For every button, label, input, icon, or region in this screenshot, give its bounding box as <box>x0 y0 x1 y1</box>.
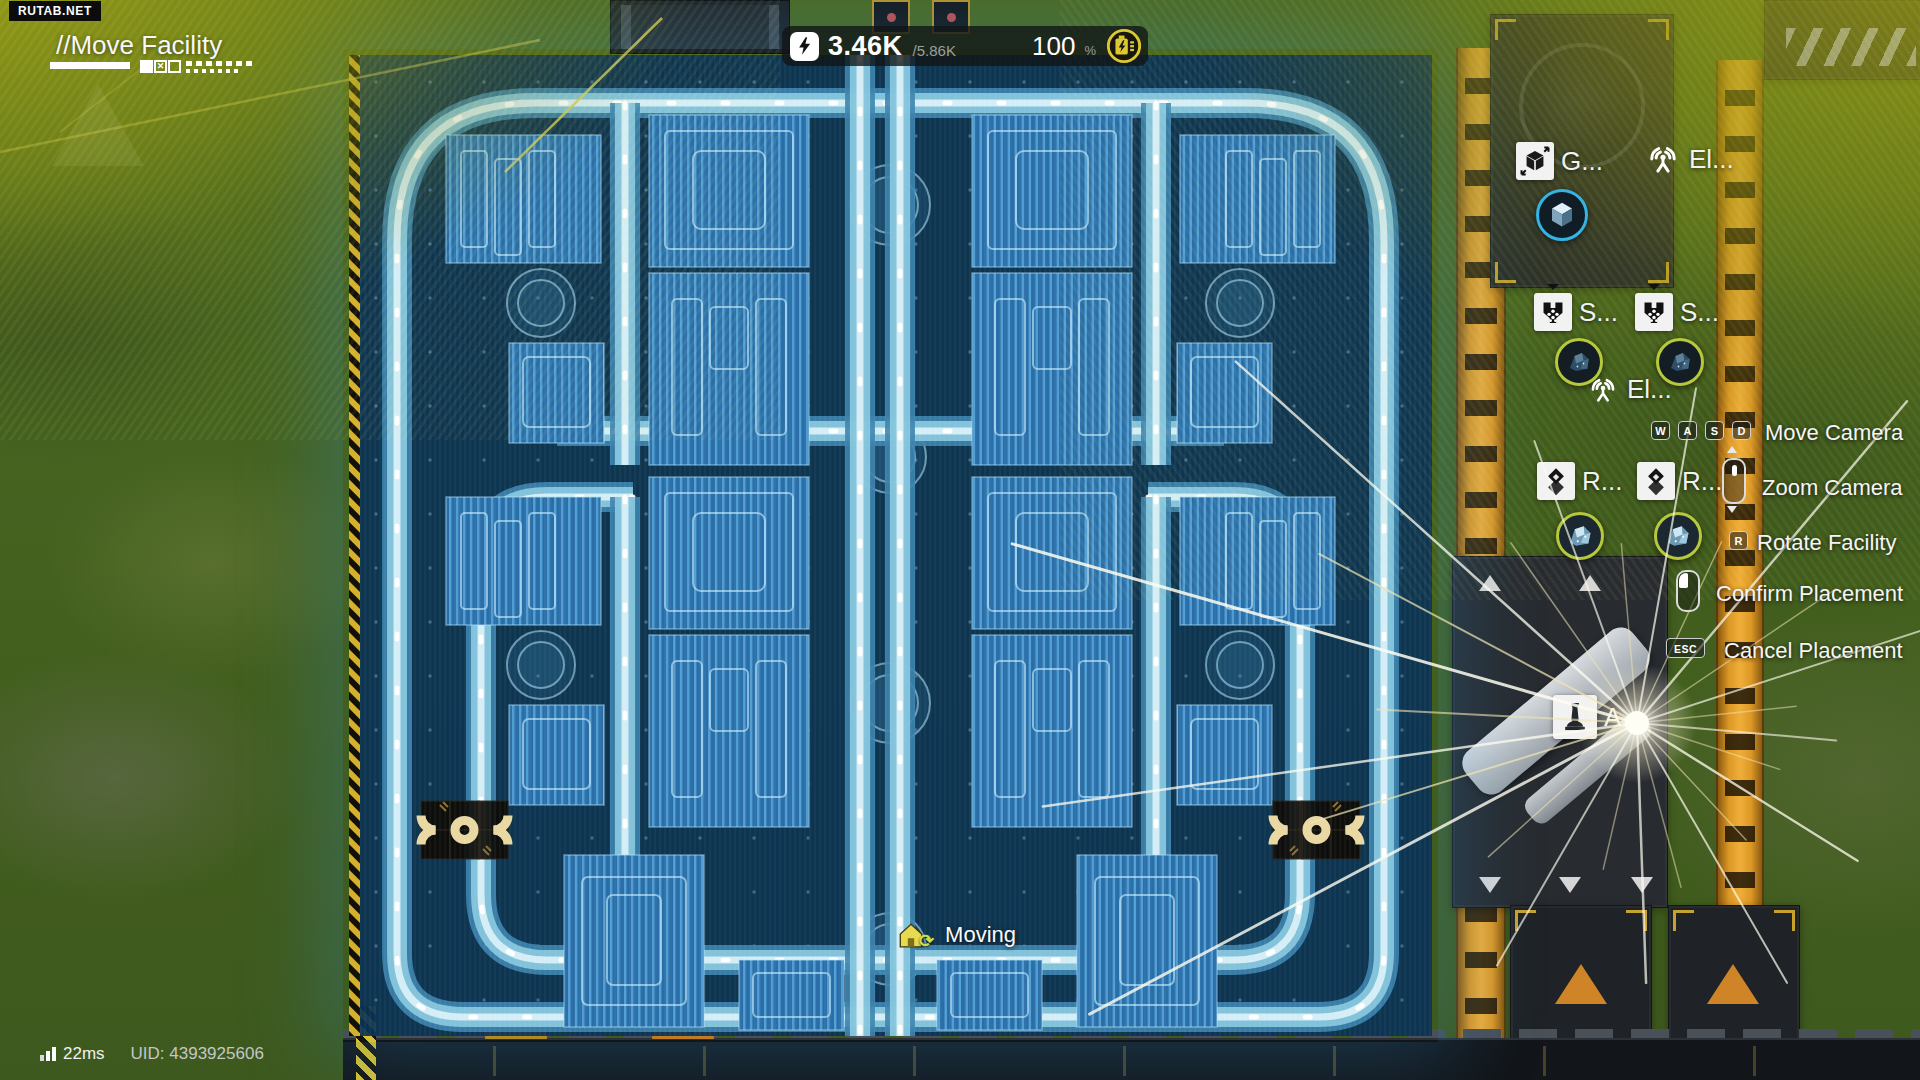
refinery-icon <box>1537 462 1575 500</box>
power-max: /5.86K <box>913 42 956 59</box>
power-icon <box>790 32 819 61</box>
marker-down <box>1631 877 1653 893</box>
sorter-icon <box>1635 293 1673 331</box>
hint-rotate-facility: Rotate Facility <box>1757 530 1896 556</box>
game-screen: .cvA{fill:none;stroke:#3d84ae;stroke-wid… <box>0 0 1920 1080</box>
factory-block-topedge <box>1764 0 1920 80</box>
facility-label: El... <box>1689 144 1734 175</box>
orange-marker <box>1707 964 1759 1004</box>
antenna-icon <box>1586 372 1620 406</box>
item-badge-crystal-1[interactable] <box>1556 512 1604 560</box>
session-footer: 22ms UID: 4393925606 <box>40 1044 264 1064</box>
facility-chip-electric-top[interactable]: El... <box>1644 140 1734 178</box>
decor-square-empty <box>168 60 181 73</box>
battery-percent-unit: % <box>1084 43 1096 58</box>
moving-status: ⟳ Moving <box>896 918 1016 952</box>
decor-bar <box>50 62 130 69</box>
signal-bars-icon <box>40 1047 56 1061</box>
site-watermark: RUTAB.NET <box>9 1 101 21</box>
sorter-icon <box>1534 293 1572 331</box>
power-current: 3.46K <box>828 31 903 62</box>
marker-down <box>1559 877 1581 893</box>
wasd-keys: W A S D <box>1651 421 1751 440</box>
facility-chip-grabber[interactable]: G... <box>1516 142 1603 180</box>
decor-square-filled <box>140 60 153 73</box>
marker-down <box>1479 877 1501 893</box>
facility-chip-electric-mid[interactable]: El... <box>1586 372 1672 406</box>
facility-chip-refinery-2[interactable]: R... <box>1637 462 1722 500</box>
battery-icon <box>1105 27 1143 65</box>
facility-label: S... <box>1579 297 1618 328</box>
moving-label: Moving <box>945 922 1016 948</box>
item-badge-cube[interactable] <box>1536 189 1588 241</box>
key-r: R <box>1729 531 1748 550</box>
facility-label: G... <box>1561 146 1603 177</box>
key-w: W <box>1651 421 1670 440</box>
key-s: S <box>1705 421 1724 440</box>
facility-chip-tower[interactable]: A... <box>1553 695 1643 739</box>
hint-cancel-placement: Cancel Placement <box>1724 638 1903 664</box>
antenna-icon <box>1644 140 1682 178</box>
refresh-icon: ⟳ <box>919 930 934 952</box>
key-d: D <box>1732 421 1751 440</box>
page-title: //Move Facility <box>56 30 222 61</box>
facility-label: R... <box>1582 466 1622 497</box>
grabber-icon <box>1516 142 1554 180</box>
facility-chip-sorter-2[interactable]: S... <box>1635 293 1719 331</box>
facility-label: A... <box>1604 702 1643 733</box>
facility-blueprint[interactable]: .cvA{fill:none;stroke:#3d84ae;stroke-wid… <box>349 55 1432 1036</box>
facility-label: S... <box>1680 297 1719 328</box>
factory-machine-top <box>610 0 790 54</box>
facility-chip-refinery-1[interactable]: R... <box>1537 462 1622 500</box>
hint-zoom-camera: Zoom Camera <box>1762 475 1903 501</box>
bottom-factory-strip <box>343 1038 1920 1080</box>
hint-move-camera: Move Camera <box>1765 420 1903 446</box>
latency-value: 22ms <box>63 1044 105 1064</box>
key-esc: ESC <box>1666 638 1705 658</box>
marker-up <box>1579 575 1601 591</box>
item-badge-crystal-2[interactable] <box>1654 512 1702 560</box>
facility-label: El... <box>1627 374 1672 405</box>
marker-up <box>1479 575 1501 591</box>
battery-percent: 100 <box>1032 31 1075 62</box>
hint-confirm-placement: Confirm Placement <box>1716 581 1903 607</box>
key-a: A <box>1678 421 1697 440</box>
mouse-left-click-icon <box>1676 570 1700 612</box>
decor-square-x: ✕ <box>154 60 167 73</box>
power-status-bar: 3.46K /5.86K 100 % <box>782 26 1148 66</box>
scroll-up-arrow <box>1727 446 1737 453</box>
scroll-down-arrow <box>1727 506 1737 513</box>
tower-icon <box>1553 695 1597 739</box>
decor-barcode <box>186 61 252 73</box>
facility-label: R... <box>1682 466 1722 497</box>
refinery-icon <box>1637 462 1675 500</box>
orange-marker <box>1555 964 1607 1004</box>
facility-chip-sorter-1[interactable]: S... <box>1534 293 1618 331</box>
uid-value: UID: 4393925606 <box>131 1044 264 1064</box>
mouse-scroll-icon <box>1722 458 1746 504</box>
